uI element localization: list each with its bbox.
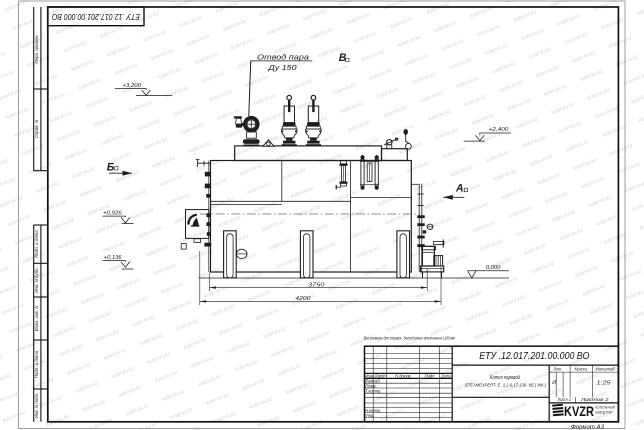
svg-text:ЗАВОД РЭП: ЗАВОД РЭП (595, 411, 612, 415)
svg-text:+0,136: +0,136 (104, 255, 123, 261)
svg-text:+3,200: +3,200 (122, 83, 141, 89)
svg-text:Масштаб: Масштаб (596, 366, 615, 371)
svg-text:Утв.: Утв. (365, 413, 374, 418)
svg-text:Т.контр.: Т.контр. (365, 389, 381, 394)
svg-text:Б: Б (107, 161, 115, 173)
svg-text:0,000: 0,000 (486, 265, 501, 271)
svg-text:+2,400: +2,400 (489, 127, 510, 133)
svg-text:Лит.: Лит. (553, 366, 562, 371)
svg-text:Инв. N подл.: Инв. N подл. (34, 393, 39, 419)
svg-text:Масса: Масса (575, 366, 589, 371)
svg-text:Лист 1: Лист 1 (557, 397, 572, 402)
svg-text:Взам. инв. N: Взам. инв. N (34, 305, 39, 331)
svg-text:Подп: Подп (425, 373, 436, 378)
svg-text:ЕТУ .12.017.201.00.000 ВО: ЕТУ .12.017.201.00.000 ВО (51, 12, 140, 21)
svg-text:Отвод пара: Отвод пара (257, 52, 309, 61)
svg-text:Листов 2: Листов 2 (580, 397, 610, 402)
svg-text:Изм.Лист: Изм.Лист (365, 373, 386, 378)
svg-text:Все размеры для справок , допу: Все размеры для справок , допустимые отк… (364, 336, 455, 341)
svg-text:+0,926: +0,926 (103, 211, 122, 217)
svg-text:3750: 3750 (308, 282, 326, 288)
svg-text:4200: 4200 (295, 296, 311, 302)
svg-text:Перв. примен.: Перв. примен. (34, 34, 39, 63)
svg-text:А: А (455, 182, 464, 194)
svg-text:Подп. и дата: Подп. и дата (34, 350, 39, 378)
svg-text:Дата: Дата (440, 373, 451, 378)
svg-text:N докум.: N докум. (395, 373, 412, 378)
svg-text:Ду 150: Ду 150 (267, 63, 297, 72)
svg-text:Инв. N дубл.: Инв. N дубл. (34, 267, 39, 292)
svg-text:STEAMEXPERT- Е -1,2-0,17-130-: STEAMEXPERT- Е -1,2-0,17-130- КБ ( ЖК ) (465, 383, 546, 388)
svg-text:KVZR: KVZR (564, 404, 594, 419)
svg-text:КОТЕЛЬНЫЙ: КОТЕЛЬНЫЙ (595, 405, 615, 409)
svg-text:1:25: 1:25 (597, 381, 612, 387)
svg-text:Формат А3: Формат А3 (571, 424, 604, 430)
svg-text:Справ. N: Справ. N (34, 119, 39, 138)
svg-text:ЕТУ .12.017.201.00.000 ВО: ЕТУ .12.017.201.00.000 ВО (479, 351, 589, 362)
svg-text:И: И (552, 380, 556, 386)
svg-text:Котел паровой: Котел паровой (490, 374, 520, 381)
svg-text:Подп. и дата: Подп. и дата (34, 230, 39, 258)
